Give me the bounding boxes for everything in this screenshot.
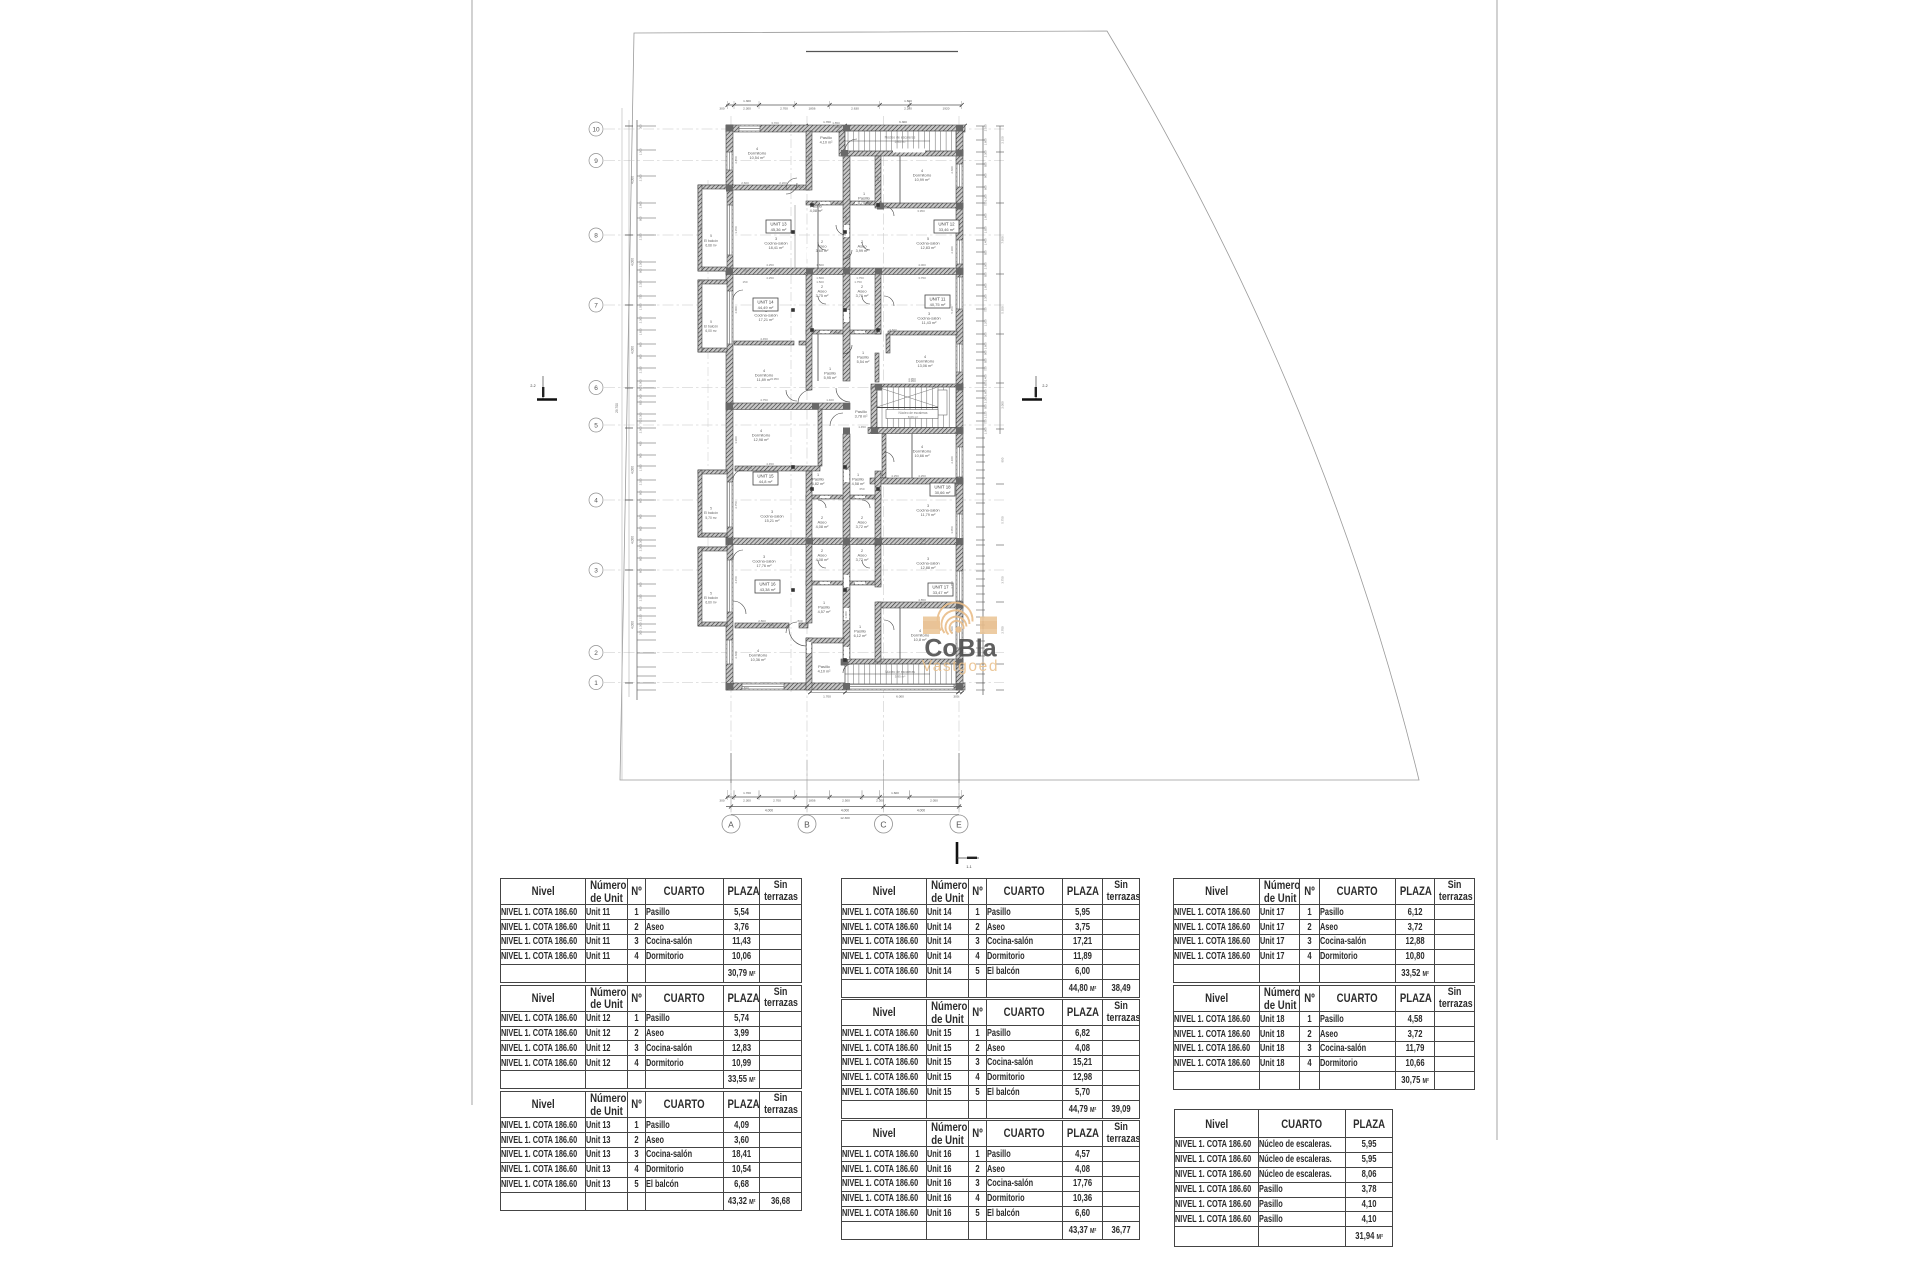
svg-text:1.400: 1.400 <box>984 238 988 245</box>
svg-text:6,00 m²: 6,00 m² <box>705 329 717 333</box>
svg-text:800: 800 <box>639 268 643 273</box>
svg-text:900: 900 <box>639 386 643 391</box>
svg-text:3: 3 <box>594 567 598 574</box>
svg-text:2.350: 2.350 <box>639 594 643 601</box>
svg-text:750: 750 <box>639 294 643 299</box>
svg-text:Dormitorio: Dormitorio <box>748 151 767 156</box>
svg-text:El balcón: El balcón <box>704 511 718 515</box>
svg-text:Aseo: Aseo <box>817 289 827 294</box>
svg-text:650: 650 <box>639 400 643 405</box>
svg-text:2.500: 2.500 <box>842 799 850 803</box>
svg-text:4.000: 4.000 <box>631 466 635 474</box>
svg-text:2-2: 2-2 <box>530 384 535 388</box>
svg-text:4.000: 4.000 <box>765 809 773 813</box>
svg-text:2.250: 2.250 <box>844 296 848 304</box>
svg-text:2.000: 2.000 <box>984 262 988 269</box>
svg-text:1.050: 1.050 <box>639 303 643 310</box>
svg-text:3.950: 3.950 <box>917 209 925 213</box>
svg-text:4.000: 4.000 <box>631 536 635 544</box>
svg-text:1-1: 1-1 <box>966 865 971 869</box>
svg-text:4: 4 <box>594 497 598 504</box>
svg-text:B: B <box>804 820 810 830</box>
svg-text:5,95 m²: 5,95 m² <box>895 675 906 679</box>
svg-text:1.300: 1.300 <box>984 194 988 201</box>
svg-text:29.700: 29.700 <box>615 403 619 413</box>
svg-text:4.250: 4.250 <box>891 474 899 478</box>
svg-text:17,21 m²: 17,21 m² <box>759 318 775 322</box>
svg-text:2.160: 2.160 <box>984 124 988 131</box>
svg-text:4,08 m²: 4,08 m² <box>810 209 824 213</box>
svg-text:2.600: 2.600 <box>950 166 954 174</box>
svg-text:11,43 m²: 11,43 m² <box>922 321 937 325</box>
svg-text:800: 800 <box>803 623 808 627</box>
svg-text:Dormitorio: Dormitorio <box>913 449 932 454</box>
svg-text:33,47 m²: 33,47 m² <box>933 590 949 595</box>
svg-text:1.300: 1.300 <box>639 148 643 155</box>
svg-text:5: 5 <box>710 507 712 511</box>
svg-text:600: 600 <box>639 526 643 531</box>
svg-text:2.150: 2.150 <box>984 411 988 418</box>
svg-text:Pasillo: Pasillo <box>818 664 831 669</box>
svg-text:4,10 m²: 4,10 m² <box>818 670 832 674</box>
svg-text:2.200: 2.200 <box>904 107 912 111</box>
svg-text:1.900: 1.900 <box>856 542 864 546</box>
svg-text:UNIT 17: UNIT 17 <box>932 584 949 589</box>
svg-text:2.750: 2.750 <box>734 501 738 509</box>
svg-text:2.150: 2.150 <box>1001 136 1005 144</box>
svg-text:1.600: 1.600 <box>984 389 988 396</box>
svg-text:4.000: 4.000 <box>631 621 635 629</box>
svg-text:3.900: 3.900 <box>734 436 738 444</box>
svg-text:900: 900 <box>639 453 643 458</box>
svg-text:2: 2 <box>594 650 598 657</box>
svg-text:2.400: 2.400 <box>984 374 988 381</box>
svg-text:950: 950 <box>1001 457 1005 462</box>
svg-text:2.300: 2.300 <box>743 107 751 111</box>
svg-text:4.950: 4.950 <box>908 377 916 381</box>
svg-text:3.050: 3.050 <box>950 526 954 534</box>
svg-text:800: 800 <box>835 331 840 335</box>
svg-text:1920: 1920 <box>943 107 950 111</box>
svg-text:2.400: 2.400 <box>844 216 848 224</box>
svg-text:6.000: 6.000 <box>896 695 904 699</box>
svg-text:10,54 m²: 10,54 m² <box>750 156 766 160</box>
svg-text:UNIT 12: UNIT 12 <box>938 221 955 226</box>
svg-text:4.000: 4.000 <box>631 346 635 354</box>
svg-text:UNIT 16: UNIT 16 <box>759 581 776 586</box>
svg-text:4,08 m²: 4,08 m² <box>816 525 830 529</box>
svg-text:4.250: 4.250 <box>771 269 779 273</box>
svg-text:4.450: 4.450 <box>766 462 774 466</box>
svg-text:4,58 m²: 4,58 m² <box>852 482 866 486</box>
svg-text:44,49 m²: 44,49 m² <box>758 305 774 310</box>
svg-text:8: 8 <box>594 232 598 239</box>
svg-text:3,72 m²: 3,72 m² <box>856 558 870 562</box>
svg-text:4.000: 4.000 <box>841 809 849 813</box>
svg-text:600: 600 <box>984 185 988 190</box>
svg-text:UNIT 11: UNIT 11 <box>930 296 946 301</box>
svg-text:600: 600 <box>639 498 643 503</box>
svg-text:2.350: 2.350 <box>639 280 643 287</box>
svg-text:Pasillo: Pasillo <box>824 371 837 376</box>
svg-text:2.300: 2.300 <box>639 544 643 551</box>
svg-text:1.650: 1.650 <box>639 328 643 335</box>
svg-text:2.300: 2.300 <box>876 799 884 803</box>
svg-text:2.300: 2.300 <box>639 316 643 323</box>
svg-text:3.750: 3.750 <box>918 542 926 546</box>
svg-text:5,95 m²: 5,95 m² <box>824 376 838 380</box>
svg-text:10: 10 <box>592 126 600 133</box>
svg-text:Pasillo: Pasillo <box>812 477 825 482</box>
svg-text:Núcleo de escaleras: Núcleo de escaleras <box>885 670 915 674</box>
svg-text:950: 950 <box>984 250 988 255</box>
svg-text:3.800: 3.800 <box>699 499 703 507</box>
svg-text:3.600: 3.600 <box>844 446 848 454</box>
svg-text:15,21 m²: 15,21 m² <box>765 519 781 523</box>
svg-text:800: 800 <box>639 216 643 221</box>
svg-text:4,08 m²: 4,08 m² <box>816 558 830 562</box>
svg-text:800: 800 <box>639 490 643 495</box>
svg-text:300: 300 <box>719 107 724 111</box>
svg-text:150: 150 <box>742 280 747 284</box>
svg-text:8,06 m²: 8,06 m² <box>908 415 918 419</box>
svg-text:1.600: 1.600 <box>891 791 899 795</box>
svg-text:2.850: 2.850 <box>734 156 738 164</box>
svg-text:2.600: 2.600 <box>762 185 770 189</box>
svg-text:Cocina-salón: Cocina-salón <box>760 514 783 519</box>
svg-text:1.000: 1.000 <box>639 379 643 386</box>
svg-text:3.750: 3.750 <box>1001 576 1005 584</box>
svg-text:El balcón: El balcón <box>704 239 718 243</box>
svg-text:Pasillo: Pasillo <box>820 135 833 140</box>
svg-text:1.850: 1.850 <box>984 226 988 233</box>
svg-text:43,38 m²: 43,38 m² <box>760 587 776 592</box>
svg-text:5: 5 <box>710 592 712 596</box>
svg-text:2.600: 2.600 <box>918 332 926 336</box>
svg-text:5,70 m²: 5,70 m² <box>705 516 717 520</box>
svg-text:Aseo: Aseo <box>817 553 827 558</box>
svg-text:4.450: 4.450 <box>699 224 703 232</box>
svg-text:4.000: 4.000 <box>734 306 738 314</box>
svg-text:2.250: 2.250 <box>876 516 880 524</box>
svg-text:4.000: 4.000 <box>699 312 703 320</box>
svg-text:7.950: 7.950 <box>1001 236 1005 244</box>
svg-text:4.250: 4.250 <box>766 276 774 280</box>
svg-text:900: 900 <box>984 350 988 355</box>
svg-text:3.700: 3.700 <box>771 121 779 125</box>
svg-text:5: 5 <box>710 234 712 238</box>
svg-text:Aseo: Aseo <box>817 520 827 525</box>
svg-text:2.050: 2.050 <box>930 799 938 803</box>
svg-text:5,95 m²: 5,95 m² <box>895 140 906 144</box>
svg-text:1.600: 1.600 <box>984 283 988 290</box>
svg-text:Núcleo de escaleras: Núcleo de escaleras <box>885 136 916 140</box>
svg-text:Cocina-salón: Cocina-salón <box>752 559 775 564</box>
svg-text:1.050: 1.050 <box>639 464 643 471</box>
svg-text:3,72 m²: 3,72 m² <box>856 525 870 529</box>
svg-text:3.350: 3.350 <box>734 226 738 234</box>
svg-text:950: 950 <box>984 162 988 167</box>
svg-text:Cocina-salón: Cocina-salón <box>916 561 939 566</box>
svg-text:950: 950 <box>984 272 988 277</box>
svg-text:A: A <box>728 820 734 830</box>
svg-text:2.300: 2.300 <box>743 799 751 803</box>
svg-text:5: 5 <box>594 422 598 429</box>
svg-text:33,46 m²: 33,46 m² <box>939 227 955 232</box>
svg-text:750: 750 <box>984 307 988 312</box>
svg-text:2.600: 2.600 <box>741 181 749 185</box>
svg-text:1.600: 1.600 <box>984 213 988 220</box>
svg-text:100: 100 <box>849 269 854 273</box>
svg-text:1.600: 1.600 <box>984 138 988 145</box>
svg-text:1.600: 1.600 <box>984 342 988 349</box>
svg-text:3,60 m²: 3,60 m² <box>816 249 830 253</box>
svg-text:5.750: 5.750 <box>1001 516 1005 524</box>
svg-text:3.600: 3.600 <box>889 328 897 332</box>
svg-text:4.000: 4.000 <box>918 263 926 267</box>
svg-text:1.600: 1.600 <box>904 99 912 103</box>
svg-text:6: 6 <box>594 385 598 392</box>
svg-text:1.850: 1.850 <box>834 125 842 129</box>
svg-text:6,60 m²: 6,60 m² <box>705 601 717 605</box>
svg-text:2.350: 2.350 <box>639 478 643 485</box>
svg-text:800: 800 <box>639 582 643 587</box>
svg-text:Aseo: Aseo <box>857 289 867 294</box>
svg-text:3,75 m²: 3,75 m² <box>816 294 830 298</box>
svg-text:Pasillo: Pasillo <box>810 204 823 209</box>
svg-text:UNIT 14: UNIT 14 <box>757 299 774 304</box>
svg-text:2.800: 2.800 <box>758 619 766 623</box>
svg-text:1: 1 <box>594 680 598 687</box>
svg-text:300: 300 <box>953 695 958 699</box>
svg-text:600: 600 <box>639 606 643 611</box>
svg-text:1.750: 1.750 <box>856 276 864 280</box>
svg-text:2.630: 2.630 <box>851 107 859 111</box>
svg-text:Pasillo: Pasillo <box>818 605 831 610</box>
svg-text:2.300: 2.300 <box>984 150 988 157</box>
svg-text:12,83 m²: 12,83 m² <box>921 246 937 250</box>
svg-text:2-2: 2-2 <box>1042 384 1047 388</box>
svg-text:950: 950 <box>984 404 988 409</box>
svg-text:45,36 m²: 45,36 m² <box>771 227 787 232</box>
svg-text:UNIT 13: UNIT 13 <box>770 221 787 226</box>
svg-text:3,99 m²: 3,99 m² <box>856 249 870 253</box>
svg-text:2.000: 2.000 <box>639 426 643 433</box>
svg-text:2.750: 2.750 <box>950 581 954 589</box>
svg-text:El balcón: El balcón <box>704 325 718 329</box>
svg-text:300: 300 <box>639 394 643 399</box>
svg-text:1.200: 1.200 <box>984 319 988 326</box>
svg-text:Pasillo: Pasillo <box>854 629 867 634</box>
svg-text:900: 900 <box>639 514 643 519</box>
svg-text:3,78 m²: 3,78 m² <box>855 415 869 419</box>
svg-text:2.300: 2.300 <box>639 412 643 419</box>
svg-text:800: 800 <box>639 354 643 359</box>
svg-text:12.300: 12.300 <box>840 816 850 820</box>
svg-text:1.850: 1.850 <box>984 381 988 388</box>
svg-text:44,8 m²: 44,8 m² <box>759 479 773 484</box>
svg-text:1.500: 1.500 <box>816 276 824 280</box>
svg-text:6.300: 6.300 <box>899 120 907 124</box>
svg-text:Dormitorio: Dormitorio <box>752 433 771 438</box>
svg-text:Cocina-salón: Cocina-salón <box>917 316 940 321</box>
svg-text:1.300: 1.300 <box>743 99 751 103</box>
svg-text:1.700: 1.700 <box>823 120 831 124</box>
svg-text:3.000: 3.000 <box>844 611 848 619</box>
svg-text:800: 800 <box>639 556 643 561</box>
svg-text:Pasillo: Pasillo <box>852 477 865 482</box>
svg-text:4.950: 4.950 <box>771 377 779 381</box>
svg-text:9: 9 <box>594 158 598 165</box>
svg-text:Pasillo: Pasillo <box>858 196 871 201</box>
svg-text:5.350: 5.350 <box>1001 306 1005 314</box>
svg-text:Cocina-salón: Cocina-salón <box>754 313 777 318</box>
svg-text:750: 750 <box>984 419 988 424</box>
svg-text:11,89 m²: 11,89 m² <box>757 378 772 382</box>
svg-text:600: 600 <box>639 342 643 347</box>
svg-text:5,54 m²: 5,54 m² <box>857 360 871 364</box>
svg-text:UNIT 15: UNIT 15 <box>757 473 774 478</box>
svg-text:2.600: 2.600 <box>639 201 643 208</box>
svg-text:4.450: 4.450 <box>734 576 738 584</box>
svg-text:Cocina-salón: Cocina-salón <box>916 241 939 246</box>
svg-text:4.850: 4.850 <box>918 603 926 607</box>
svg-text:10,36 m²: 10,36 m² <box>751 658 767 662</box>
svg-text:1.700: 1.700 <box>823 695 831 699</box>
svg-text:Pasillo: Pasillo <box>857 355 870 360</box>
svg-text:4.450: 4.450 <box>760 337 768 341</box>
svg-text:800: 800 <box>797 619 802 623</box>
svg-text:4,57 m²: 4,57 m² <box>818 610 832 614</box>
svg-text:6,12 m²: 6,12 m² <box>854 634 868 638</box>
svg-text:Dormitorio: Dormitorio <box>749 653 768 658</box>
svg-text:4.750: 4.750 <box>760 398 768 402</box>
svg-text:2.200: 2.200 <box>796 185 804 189</box>
svg-text:1.300: 1.300 <box>639 622 643 629</box>
svg-text:10,99 m²: 10,99 m² <box>915 178 931 182</box>
svg-text:900: 900 <box>984 173 988 178</box>
svg-text:Aseo: Aseo <box>857 520 867 525</box>
svg-text:2.400: 2.400 <box>807 156 811 164</box>
svg-text:1.000: 1.000 <box>984 427 988 434</box>
svg-text:1856: 1856 <box>809 799 816 803</box>
svg-text:1.500: 1.500 <box>816 280 824 284</box>
svg-text:2.700: 2.700 <box>780 107 788 111</box>
svg-text:4.450: 4.450 <box>744 466 752 470</box>
svg-text:40,75 m²: 40,75 m² <box>930 302 946 307</box>
svg-text:Aseo: Aseo <box>817 244 827 249</box>
svg-text:450: 450 <box>639 441 643 446</box>
svg-text:2.300: 2.300 <box>639 174 643 181</box>
svg-text:18,41 m²: 18,41 m² <box>769 246 785 250</box>
svg-text:5: 5 <box>710 320 712 324</box>
svg-text:Vastgoed: Vastgoed <box>922 658 999 675</box>
svg-text:4.250: 4.250 <box>918 474 926 478</box>
svg-text:C: C <box>880 820 886 830</box>
svg-text:12,88 m²: 12,88 m² <box>921 566 937 570</box>
svg-text:2.300: 2.300 <box>984 294 988 301</box>
svg-text:1.900: 1.900 <box>816 539 824 543</box>
svg-text:Dormitorio: Dormitorio <box>913 173 932 178</box>
svg-text:2.300: 2.300 <box>950 246 954 254</box>
svg-text:13,06 m²: 13,06 m² <box>918 364 934 368</box>
svg-text:1.300: 1.300 <box>639 538 643 545</box>
svg-text:7: 7 <box>594 302 598 309</box>
svg-text:2.600: 2.600 <box>734 651 738 659</box>
svg-text:1856: 1856 <box>809 107 816 111</box>
svg-text:Dormitorio: Dormitorio <box>916 359 935 364</box>
svg-text:4,10 m²: 4,10 m² <box>820 141 834 145</box>
svg-text:3,76 m²: 3,76 m² <box>856 294 870 298</box>
svg-text:Cocina-salón: Cocina-salón <box>764 241 787 246</box>
svg-text:11,79 m²: 11,79 m² <box>921 513 936 517</box>
svg-text:Aseo: Aseo <box>857 244 867 249</box>
svg-text:2.400: 2.400 <box>950 456 954 464</box>
svg-text:1.500: 1.500 <box>639 260 643 267</box>
svg-text:700: 700 <box>639 419 643 424</box>
svg-text:4.400: 4.400 <box>699 579 703 587</box>
svg-text:5.350: 5.350 <box>950 306 954 314</box>
svg-text:1.500: 1.500 <box>741 686 749 690</box>
svg-text:2.450: 2.450 <box>807 516 811 524</box>
svg-text:500: 500 <box>984 332 988 337</box>
svg-text:El balcón: El balcón <box>704 596 718 600</box>
svg-text:1.600: 1.600 <box>834 202 842 206</box>
svg-text:12,98 m²: 12,98 m² <box>754 438 770 442</box>
svg-text:1.450: 1.450 <box>858 425 866 429</box>
svg-text:4.000: 4.000 <box>631 258 635 266</box>
svg-text:2.350: 2.350 <box>639 366 643 373</box>
svg-text:6.200: 6.200 <box>876 176 880 184</box>
svg-text:3.750: 3.750 <box>918 276 926 280</box>
svg-text:1.500: 1.500 <box>816 263 824 267</box>
svg-text:2.300: 2.300 <box>984 396 988 403</box>
svg-text:30,66 m²: 30,66 m² <box>935 490 951 495</box>
svg-text:4.250: 4.250 <box>766 263 774 267</box>
svg-text:2.200: 2.200 <box>779 181 787 185</box>
svg-text:2.000: 2.000 <box>1001 401 1005 409</box>
svg-text:1.500: 1.500 <box>816 269 824 273</box>
svg-text:2.700: 2.700 <box>773 799 781 803</box>
svg-text:Cocina-salón: Cocina-salón <box>916 508 939 513</box>
svg-text:10,66 m²: 10,66 m² <box>915 454 931 458</box>
svg-text:800: 800 <box>865 202 870 206</box>
svg-text:2.350: 2.350 <box>639 233 643 240</box>
svg-text:950: 950 <box>984 358 988 363</box>
svg-text:Pasillo: Pasillo <box>855 409 868 414</box>
svg-text:UNIT 18: UNIT 18 <box>934 484 951 489</box>
svg-text:4.000: 4.000 <box>631 176 635 184</box>
svg-text:E: E <box>956 820 962 830</box>
svg-text:4.850: 4.850 <box>918 598 926 602</box>
svg-text:2.700: 2.700 <box>1001 626 1005 634</box>
svg-text:1.700: 1.700 <box>743 791 751 795</box>
svg-text:300: 300 <box>639 124 643 129</box>
svg-text:1.400: 1.400 <box>826 398 834 402</box>
svg-text:750: 750 <box>984 366 988 371</box>
svg-text:2.150: 2.150 <box>639 614 643 621</box>
svg-text:1.750: 1.750 <box>854 280 862 284</box>
svg-text:750: 750 <box>984 201 988 206</box>
svg-text:300: 300 <box>639 630 643 635</box>
svg-text:250: 250 <box>742 269 747 273</box>
svg-text:17,76 m²: 17,76 m² <box>757 564 773 568</box>
svg-text:6,82 m²: 6,82 m² <box>812 482 826 486</box>
svg-text:Aseo: Aseo <box>857 553 867 558</box>
svg-text:600: 600 <box>639 568 643 573</box>
svg-text:6,68 m²: 6,68 m² <box>705 243 717 247</box>
svg-text:4.000: 4.000 <box>917 809 925 813</box>
